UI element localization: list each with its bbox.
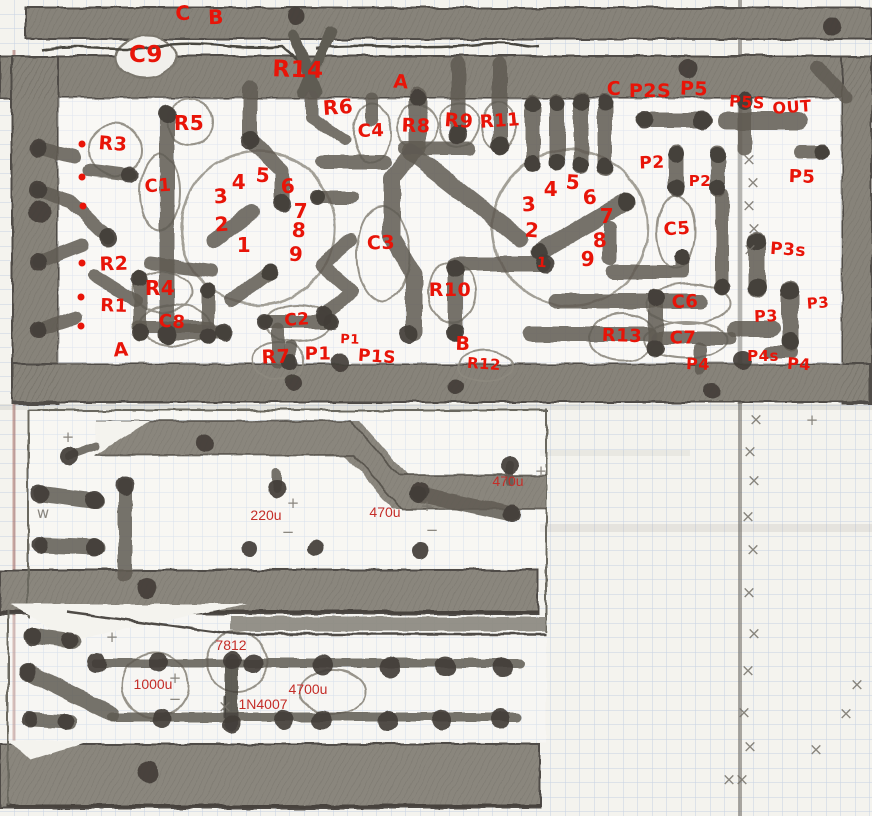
pcb-sketch-page: Hand-drawn PCB copper trace layout sketc…: [0, 0, 872, 816]
pcb-sketch-drawing: [0, 0, 872, 816]
